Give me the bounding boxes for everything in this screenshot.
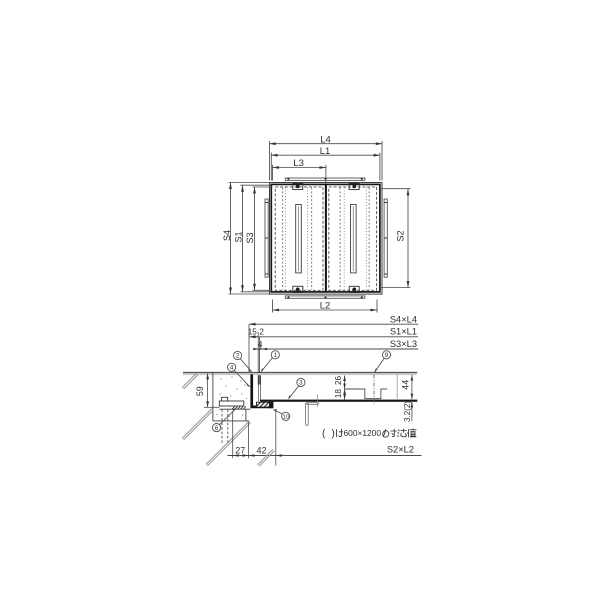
svg-text:1: 1 (274, 352, 278, 359)
svg-text:3: 3 (299, 380, 303, 387)
svg-text:4: 4 (258, 340, 263, 349)
svg-text:S1×L1: S1×L1 (390, 327, 417, 337)
svg-text:4: 4 (230, 365, 234, 372)
svg-text:10: 10 (283, 415, 289, 421)
svg-text:L1: L1 (320, 146, 331, 157)
svg-text:59: 59 (195, 386, 205, 396)
svg-text:26: 26 (334, 376, 343, 386)
svg-text:S3: S3 (245, 232, 255, 243)
svg-text:L4: L4 (320, 134, 331, 145)
svg-text:S4×L4: S4×L4 (390, 314, 417, 324)
svg-text:S2×L2: S2×L2 (387, 445, 414, 455)
svg-text:3.2(2): 3.2(2) (403, 401, 412, 422)
svg-text:S2: S2 (396, 230, 406, 241)
svg-text:9: 9 (385, 352, 389, 359)
svg-text:L3: L3 (293, 158, 304, 169)
svg-text:18: 18 (334, 389, 343, 399)
svg-text:S4: S4 (222, 230, 232, 241)
svg-text:27: 27 (235, 445, 245, 455)
svg-text:S3×L3: S3×L3 (390, 339, 417, 349)
svg-text:2: 2 (236, 353, 240, 360)
svg-text:2: 2 (259, 327, 264, 336)
svg-text:600×1200: 600×1200 (344, 428, 382, 438)
svg-text:6: 6 (215, 425, 219, 432)
svg-text:44: 44 (401, 380, 411, 390)
svg-text:L2: L2 (320, 301, 331, 312)
svg-text:15: 15 (248, 327, 258, 336)
svg-text:S1: S1 (233, 231, 243, 242)
svg-text:42: 42 (256, 445, 266, 455)
svg-text:): ) (332, 428, 335, 439)
